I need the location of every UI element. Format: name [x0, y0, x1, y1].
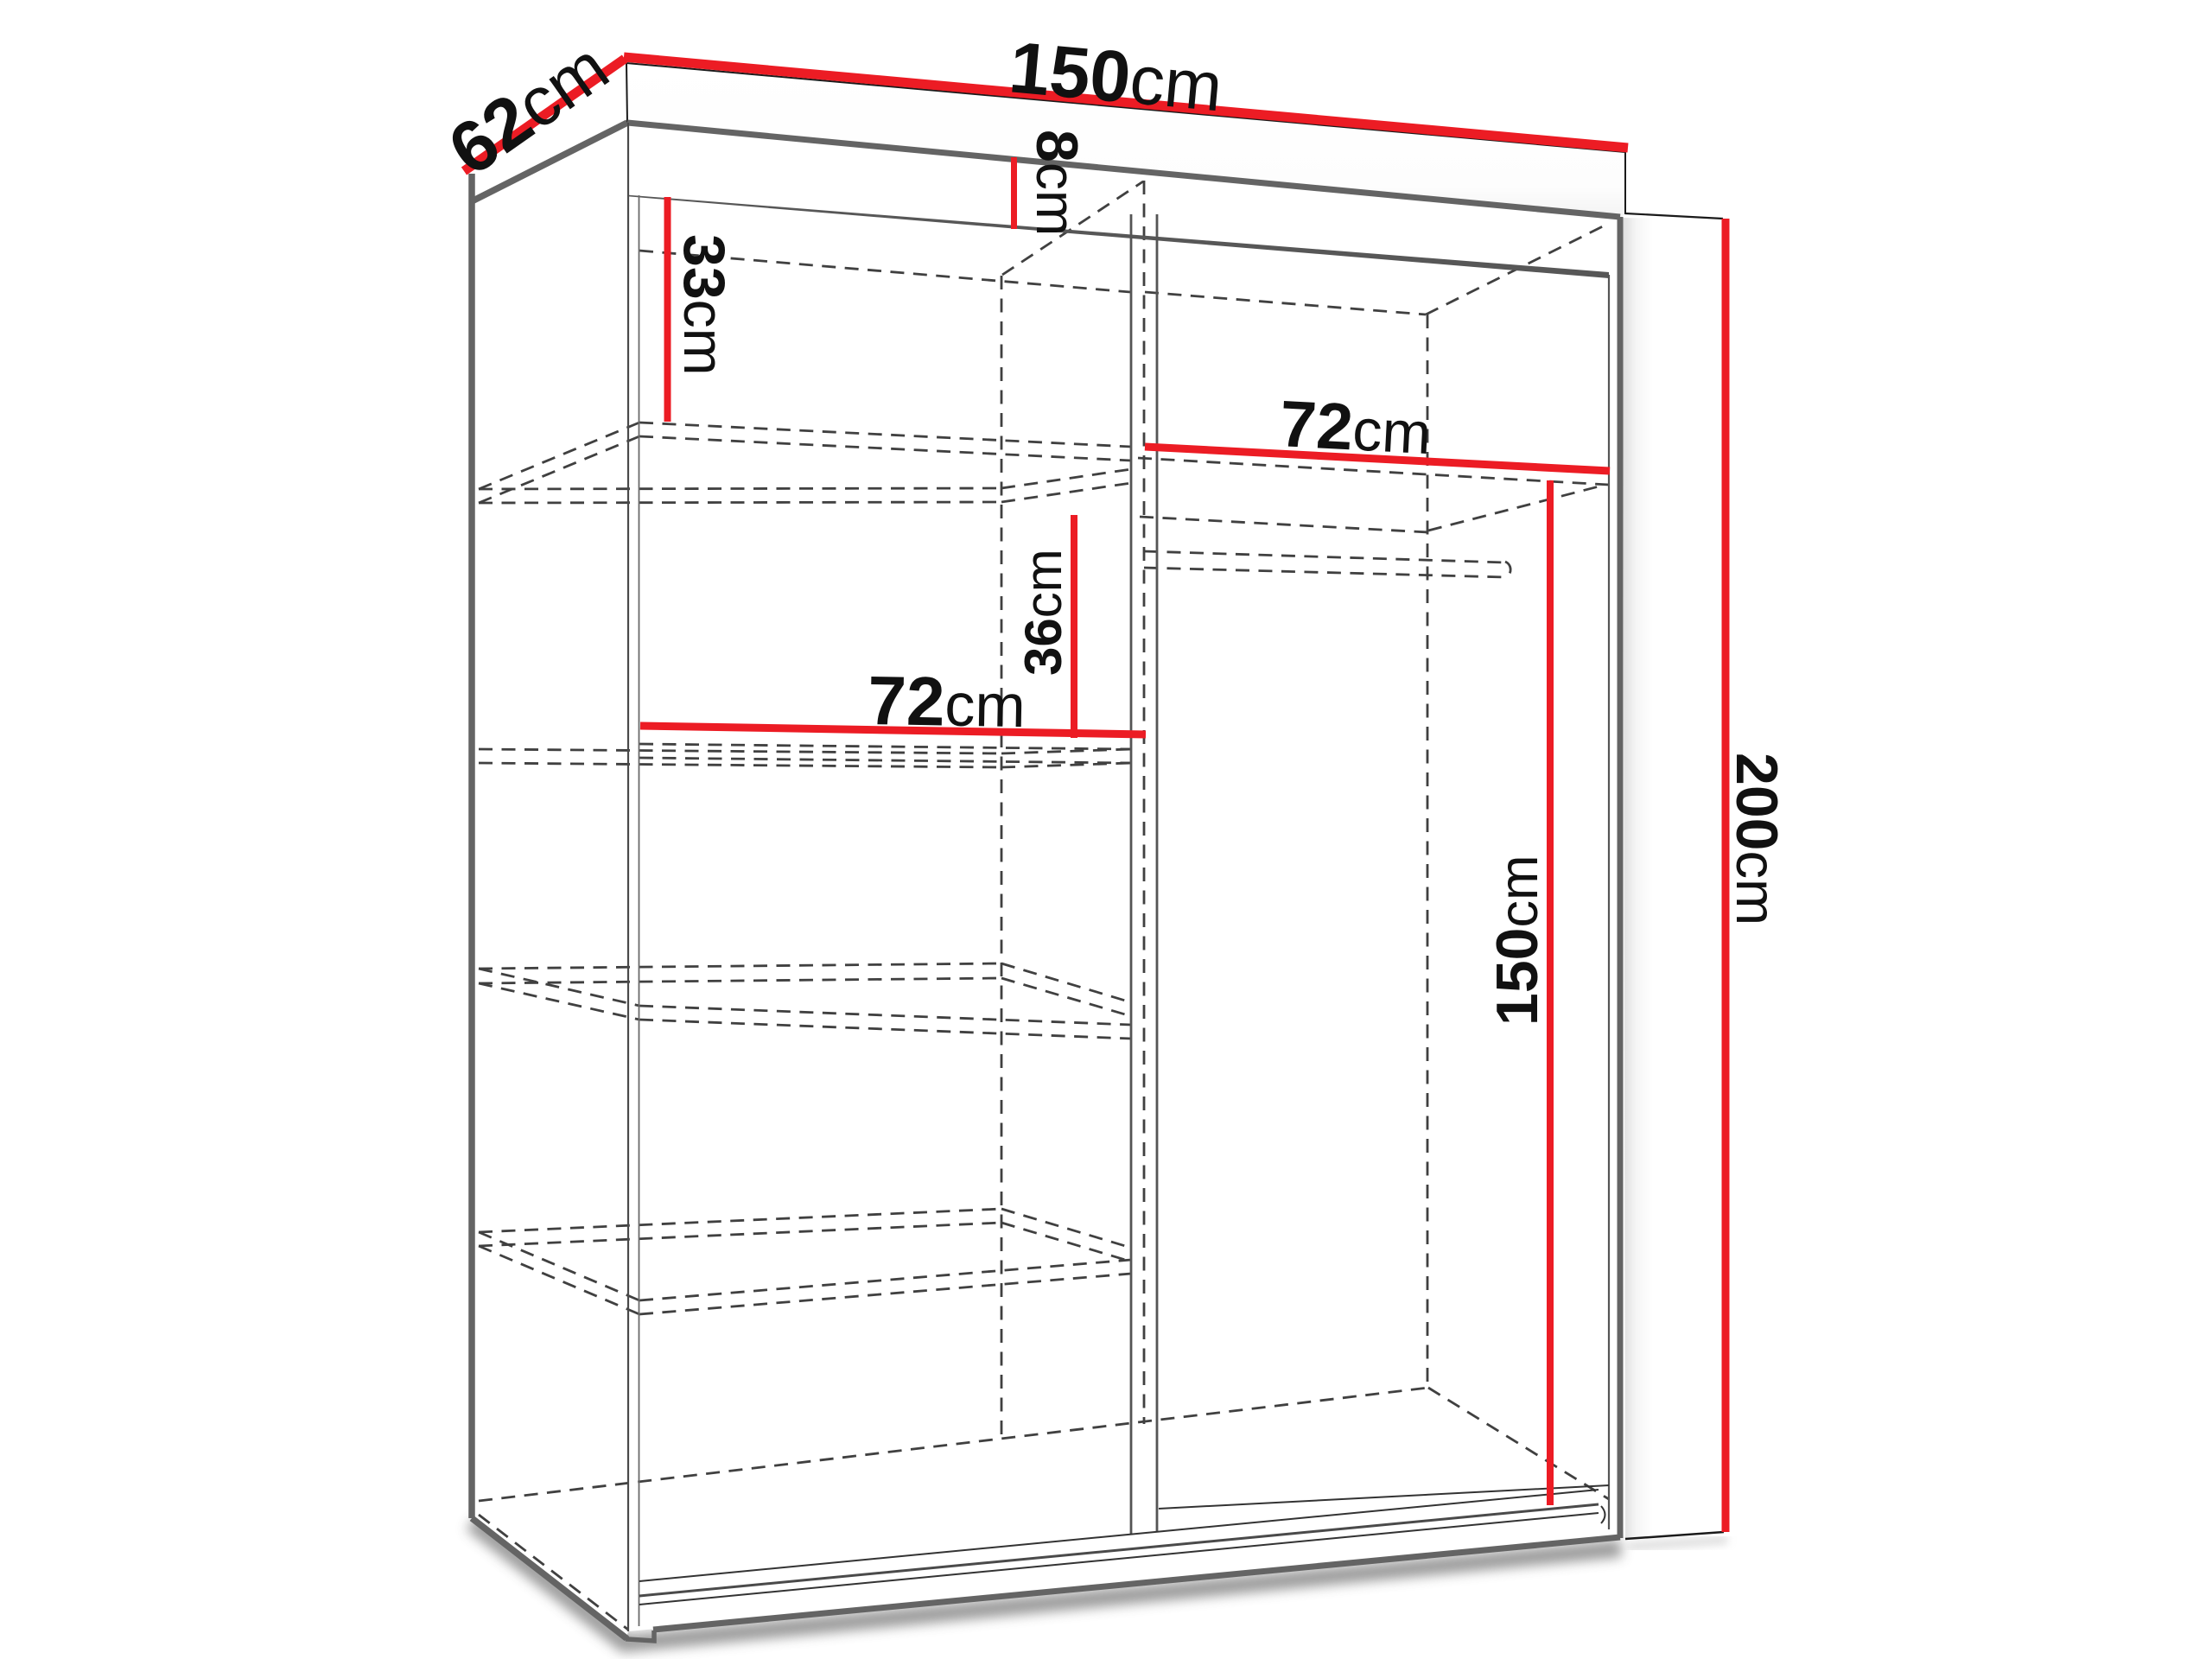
svg-text:8cm: 8cm	[1024, 130, 1090, 236]
svg-text:150cm: 150cm	[1484, 855, 1550, 1026]
svg-text:33cm: 33cm	[671, 234, 737, 376]
svg-text:200cm: 200cm	[1724, 753, 1789, 925]
svg-text:72cm: 72cm	[1278, 387, 1433, 468]
svg-text:36cm: 36cm	[1014, 549, 1072, 676]
svg-text:72cm: 72cm	[868, 662, 1027, 741]
